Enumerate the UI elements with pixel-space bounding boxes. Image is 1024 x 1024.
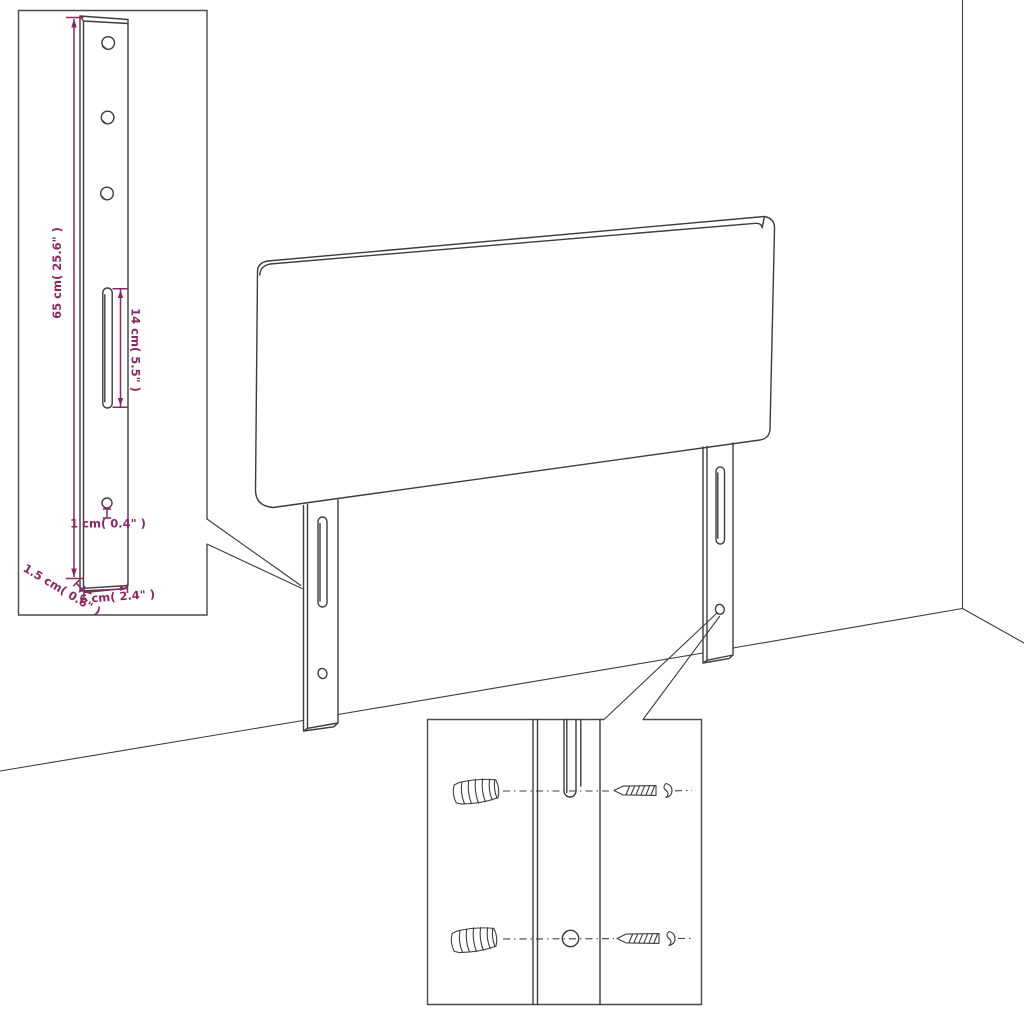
leg-dimension-detail-inset: 65 cm( 25.6" ) 14 cm( 5.5" ) 1 cm( 0.4" …: [19, 11, 208, 619]
hole-diameter-label: 1 cm( 0.4" ): [70, 517, 146, 531]
headboard-left-leg: [304, 500, 339, 731]
leg-height-label: 65 cm( 25.6" ): [50, 227, 64, 319]
mounting-hardware-inset: [428, 720, 702, 1005]
hole-diameter-dimension: 1 cm( 0.4" ): [70, 509, 146, 531]
floor-line-left: [0, 609, 963, 772]
right-leg-slot: [716, 467, 725, 544]
leg-width-dimension: 6 cm( 2.4" ): [79, 584, 155, 607]
callout-right-line-right: [643, 617, 720, 720]
screw-top: [614, 784, 672, 798]
alignment-dash-lines: [503, 790, 694, 939]
leg-thickness-dimension: 1.5 cm( 0.6" ): [21, 561, 104, 618]
callout-lines-left: [207, 519, 302, 589]
slot-length-arrow-top: [118, 290, 123, 298]
headboard-panel: [256, 217, 775, 508]
headboard-top-seam-line: [260, 223, 762, 275]
leg-height-dimension-line: [66, 18, 84, 579]
headboard-right-leg: [703, 443, 733, 663]
dash-line-top: [503, 790, 692, 791]
detail-leg-slot: [103, 288, 112, 408]
leg-height-dimension: 65 cm( 25.6" ): [50, 18, 84, 579]
left-leg-outline: [304, 500, 339, 731]
leg-height-arrow-top: [71, 19, 77, 28]
screw-bottom: [617, 932, 675, 946]
headboard-dimension-diagram: 65 cm( 25.6" ) 14 cm( 5.5" ) 1 cm( 0.4" …: [0, 0, 1024, 1024]
leg-height-arrow-bottom: [71, 569, 77, 578]
wall-anchor-top: [452, 777, 500, 806]
slot-length-arrow-bottom: [118, 398, 123, 406]
left-leg-screw-hole: [317, 667, 329, 679]
floor-line-right: [963, 609, 1024, 644]
mounting-inset-leg-strip: [533, 720, 600, 1005]
slot-length-label: 14 cm( 5.5" ): [129, 308, 143, 392]
slot-length-dimension-line: [113, 289, 128, 407]
callout-left-line-lower: [207, 544, 302, 589]
leg-width-label: 6 cm( 2.4" ): [79, 587, 155, 606]
inset-strip-slot: [564, 720, 581, 798]
headboard-top-right-curl: [762, 217, 764, 227]
headboard-panel-outline: [256, 217, 775, 508]
wall-anchor-bottom: [450, 925, 498, 954]
leg-thickness-label: 1.5 cm( 0.6" ): [21, 561, 104, 618]
left-leg-slot: [318, 517, 327, 607]
callout-left-line-upper: [207, 519, 301, 586]
wall-corner-lines: [0, 0, 1024, 771]
detail-leg-bottom-hole: [102, 498, 112, 508]
inset-strip-hole-depth: [564, 931, 568, 935]
dash-line-bottom: [503, 938, 694, 939]
